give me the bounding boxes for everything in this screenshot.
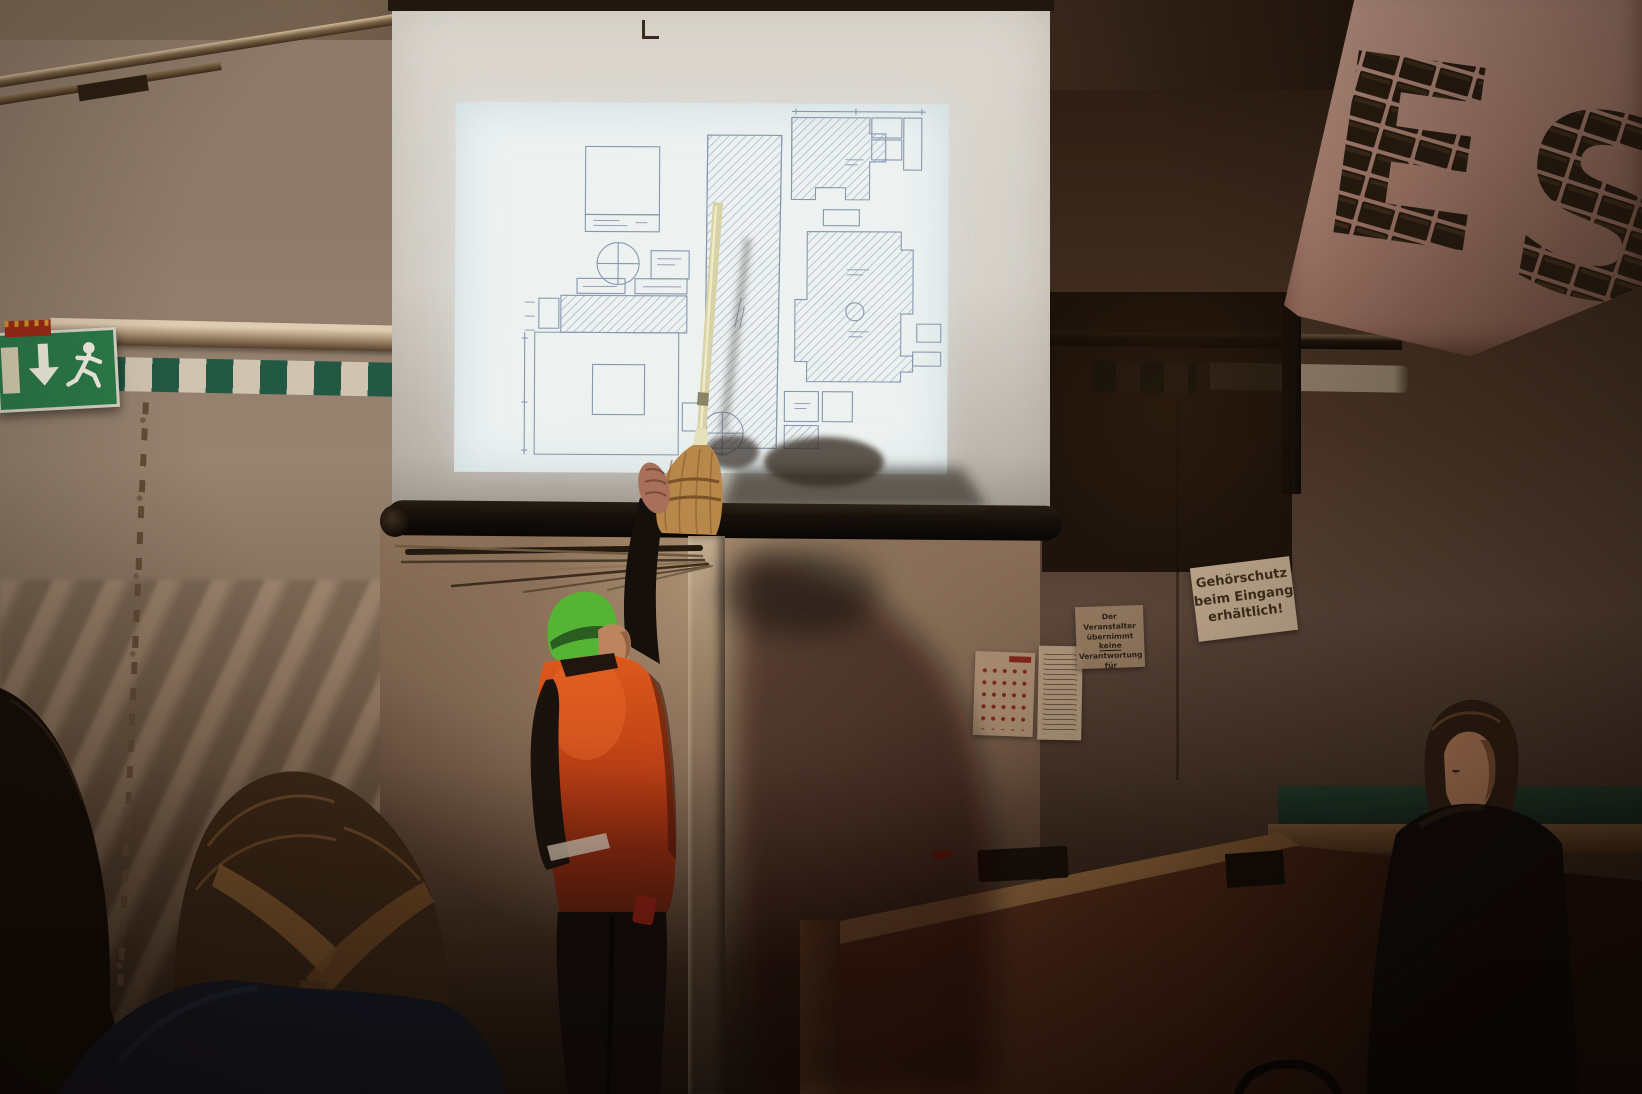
pictogram-grid <box>978 665 1030 731</box>
screen-roller-endcap <box>380 505 410 537</box>
dark-opening <box>1042 292 1292 572</box>
back-table-plank <box>1268 824 1642 852</box>
photo-scene: E S <box>0 0 1642 1094</box>
veranstalter-sign: Der Veranstalter übernimmt keine Verantw… <box>1075 605 1145 669</box>
screen-bottom-roller <box>386 500 1062 541</box>
floor-plan-drawing <box>454 102 949 475</box>
desk-object-box <box>977 846 1069 883</box>
veranstalter-line2: übernimmt keine <box>1076 630 1145 652</box>
text-sheet-lines <box>1042 654 1077 735</box>
exit-sign <box>0 327 120 413</box>
exit-down-arrow-icon <box>28 341 61 396</box>
screen-top-trim <box>388 0 1054 11</box>
barrier-tape-left <box>98 357 425 398</box>
projected-slide <box>454 102 949 475</box>
desk-object-dark-right <box>1225 850 1285 888</box>
gehoerschutz-sign: Gehörschutz beim Eingang erhältlich! <box>1190 556 1298 642</box>
pictogram-poster-header <box>1009 656 1031 663</box>
exit-door-panel <box>1 347 20 394</box>
counter-side-left <box>800 920 840 1094</box>
screen-hanger-hook <box>642 20 659 39</box>
exit-sign-red-label <box>5 320 52 338</box>
veranstalter-line3: Verantwortung für <box>1077 650 1146 669</box>
veranstalter-line1: Der Veranstalter <box>1075 611 1144 633</box>
back-table-green <box>1278 786 1642 828</box>
exit-running-man-icon <box>63 336 108 396</box>
pictogram-poster <box>973 651 1036 737</box>
tent-post <box>688 536 725 1094</box>
